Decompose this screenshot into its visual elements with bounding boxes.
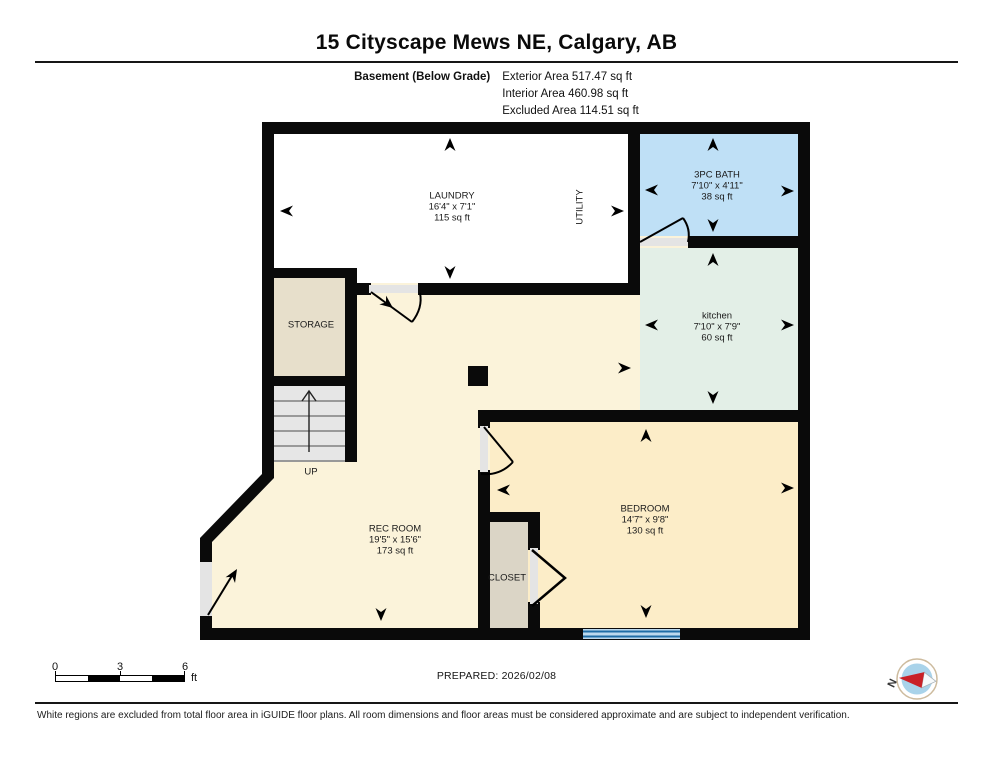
room-label-closet: CLOSET	[488, 573, 526, 584]
window	[583, 629, 680, 639]
support-column	[468, 366, 488, 386]
room-label-laundry: LAUNDRY 16'4" x 7'1" 115 sq ft	[429, 191, 476, 224]
room-label-utility: UTILITY	[575, 189, 586, 224]
room-name: LAUNDRY	[429, 191, 476, 202]
disclaimer-text: White regions are excluded from total fl…	[37, 710, 963, 721]
room-area: 115 sq ft	[429, 213, 476, 224]
room-label-bedroom: BEDROOM 14'7" x 9'8" 130 sq ft	[620, 504, 669, 537]
room-area: 130 sq ft	[620, 526, 669, 537]
room-label-rec-room: REC ROOM 19'5" x 15'6" 173 sq ft	[369, 524, 421, 557]
room-area: 173 sq ft	[369, 546, 421, 557]
room-dims: 7'10" x 4'11"	[691, 181, 742, 192]
room-label-storage: STORAGE	[288, 320, 334, 331]
room-label-bath: 3PC BATH 7'10" x 4'11" 38 sq ft	[691, 170, 742, 203]
room-name: BEDROOM	[620, 504, 669, 515]
room-dims: 19'5" x 15'6"	[369, 535, 421, 546]
footer-divider	[35, 702, 958, 704]
up-label: UP	[304, 467, 317, 478]
prepared-date: PREPARED: 2026/02/08	[0, 670, 993, 682]
room-name: CLOSET	[488, 573, 526, 584]
room-name: 3PC BATH	[691, 170, 742, 181]
stairs-up-label: UP	[304, 467, 317, 478]
room-dims: 16'4" x 7'1"	[429, 202, 476, 213]
room-dims: 7'10" x 7'9"	[694, 322, 741, 333]
room-name: REC ROOM	[369, 524, 421, 535]
room-area: 38 sq ft	[691, 192, 742, 203]
floor-plan-drawing: N	[0, 0, 993, 768]
room-name: STORAGE	[288, 320, 334, 331]
room-name: kitchen	[694, 311, 741, 322]
room-area: 60 sq ft	[694, 333, 741, 344]
room-name: UTILITY	[575, 189, 586, 224]
floorplan-page: 15 Cityscape Mews NE, Calgary, AB Baseme…	[0, 0, 993, 768]
room-dims: 14'7" x 9'8"	[620, 515, 669, 526]
room-label-kitchen: kitchen 7'10" x 7'9" 60 sq ft	[694, 311, 741, 344]
